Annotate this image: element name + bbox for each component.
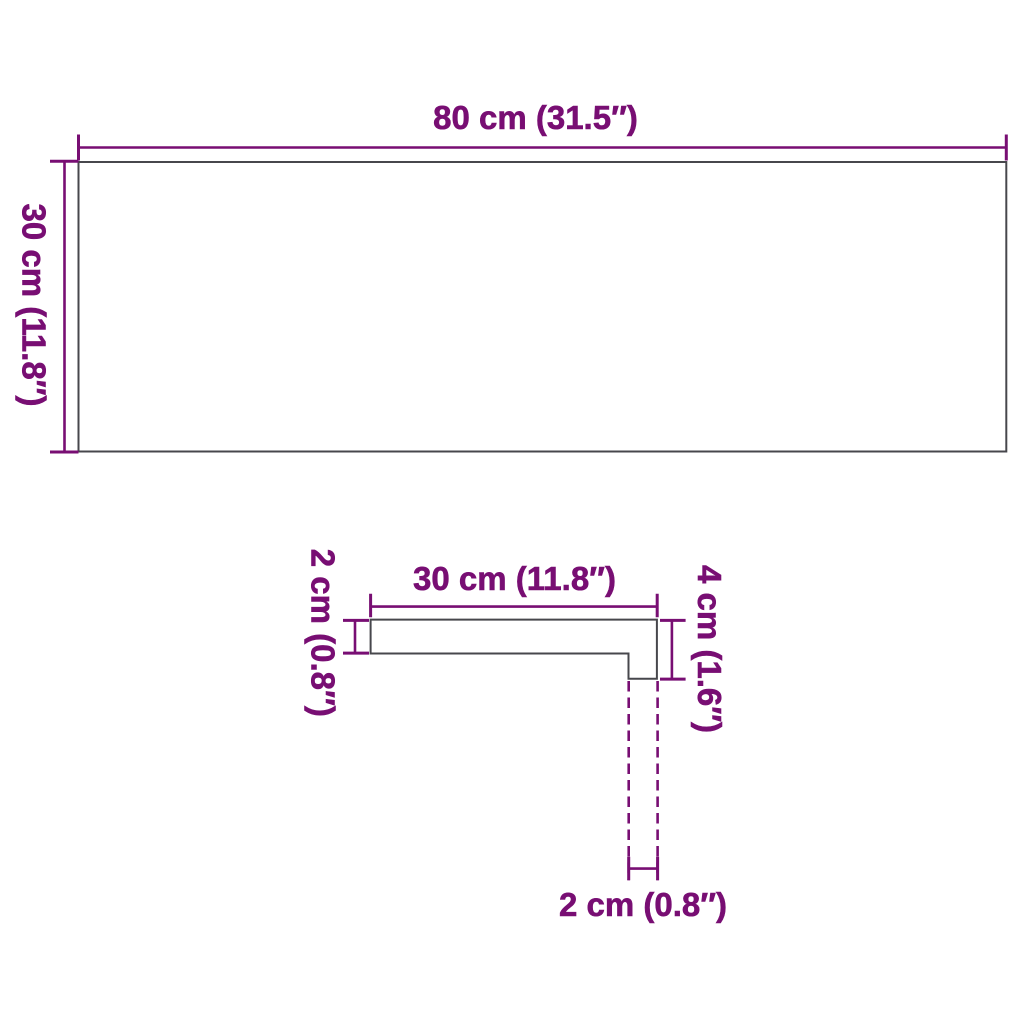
svg-text:30 cm (11.8″): 30 cm (11.8″): [16, 204, 53, 407]
svg-text:2 cm (0.8″): 2 cm (0.8″): [559, 886, 727, 923]
svg-text:2 cm (0.8″): 2 cm (0.8″): [305, 549, 342, 717]
svg-text:30 cm (11.8″): 30 cm (11.8″): [413, 560, 616, 597]
svg-text:80 cm (31.5″): 80 cm (31.5″): [433, 99, 638, 136]
svg-text:4 cm (1.6″): 4 cm (1.6″): [691, 565, 728, 733]
